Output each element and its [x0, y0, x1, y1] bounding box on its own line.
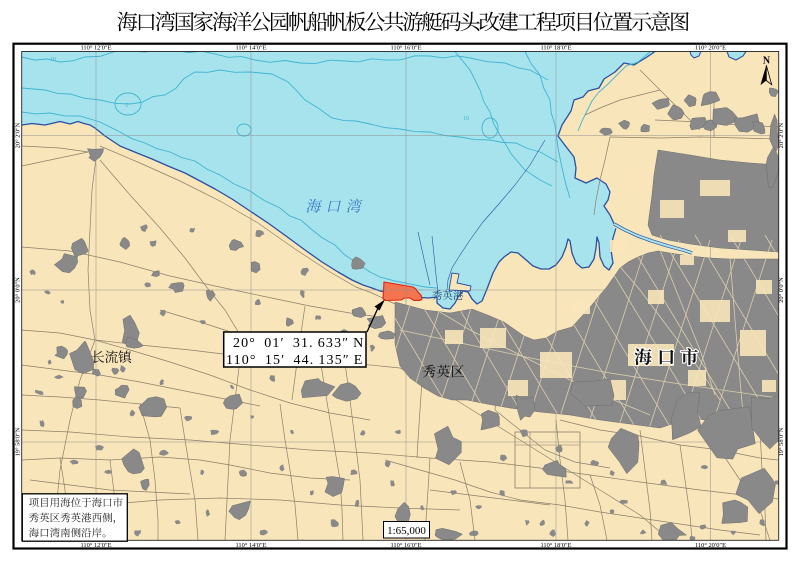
svg-text:20° 01′ 31. 633″ N: 20° 01′ 31. 633″ N — [233, 336, 364, 351]
svg-text:110° 15′ 44. 135″ E: 110° 15′ 44. 135″ E — [226, 353, 363, 368]
svg-text:110° 18′0″E: 110° 18′0″E — [540, 542, 571, 549]
svg-text:110° 14′0″E: 110° 14′0″E — [235, 542, 266, 549]
svg-text:110° 12′0″E: 110° 12′0″E — [80, 542, 111, 549]
svg-text:110° 20′0″E: 110° 20′0″E — [695, 542, 726, 549]
svg-text:110° 18′0″E: 110° 18′0″E — [540, 44, 571, 51]
svg-text:110° 12′0″E: 110° 12′0″E — [80, 44, 111, 51]
svg-text:19° 58′0″N: 19° 58′0″N — [778, 427, 785, 456]
svg-text:20° 2′0″N: 20° 2′0″N — [778, 122, 785, 148]
svg-text:5: 5 — [125, 103, 128, 109]
svg-text:110° 14′0″E: 110° 14′0″E — [235, 44, 266, 51]
svg-text:20° 0′0″N: 20° 0′0″N — [778, 277, 785, 303]
svg-text:N: N — [763, 56, 771, 67]
svg-text:20° 2′0″N: 20° 2′0″N — [15, 122, 22, 148]
svg-text:10: 10 — [463, 116, 469, 122]
svg-text:20° 0′0″N: 20° 0′0″N — [15, 277, 22, 303]
svg-text:19° 58′0″N: 19° 58′0″N — [15, 427, 22, 456]
svg-text:110° 16′0″E: 110° 16′0″E — [390, 542, 421, 549]
svg-text:10: 10 — [50, 57, 56, 63]
svg-text:1:65,000: 1:65,000 — [387, 525, 426, 537]
svg-text:110° 16′0″E: 110° 16′0″E — [390, 44, 421, 51]
svg-text:110° 20′0″E: 110° 20′0″E — [695, 44, 726, 51]
